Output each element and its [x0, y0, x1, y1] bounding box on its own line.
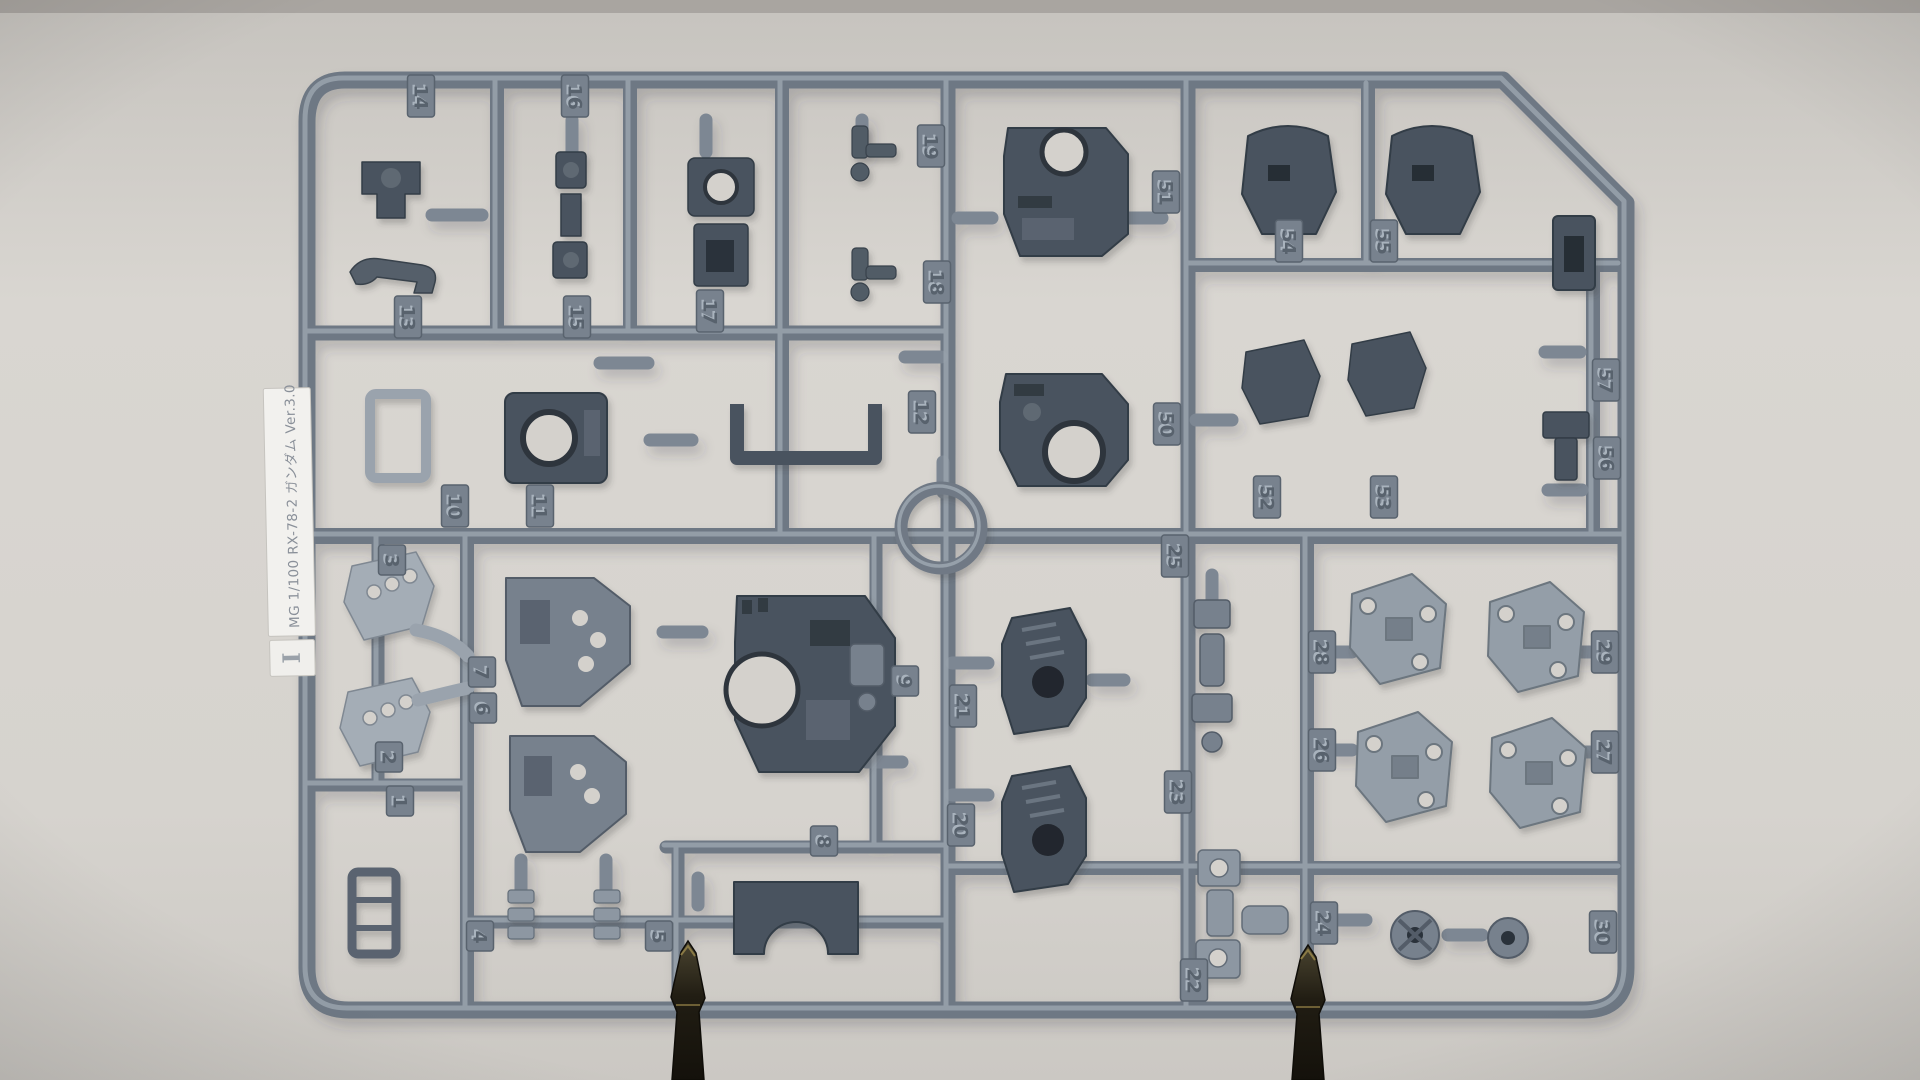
runner-photo-svg: 1414161619195151545455551818131315151717… — [0, 0, 1920, 1080]
photo-vignette — [0, 0, 1920, 1080]
photo-of-model-kit-runner: 1414161619195151545455551818131315151717… — [0, 0, 1920, 1080]
